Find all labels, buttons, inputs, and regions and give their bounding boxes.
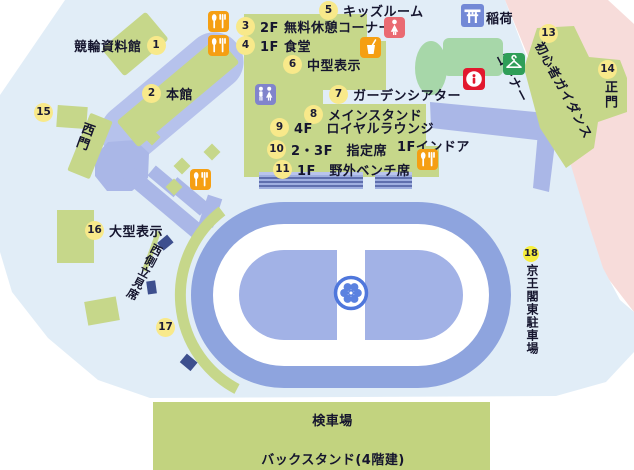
marker-9-label: 4F ロイヤルラウンジ (294, 118, 434, 137)
marker-15[interactable]: 15 (34, 103, 53, 122)
marker-14[interactable]: 14 (598, 60, 617, 79)
marker-11-label: 1F 野外ベンチ席 (297, 160, 410, 179)
marker-17[interactable]: 17 (156, 318, 175, 337)
marker-2-label: 本館 (166, 84, 193, 103)
marker-10-label: 2・3F 指定席 (291, 140, 387, 159)
drink-icon (360, 37, 381, 58)
marker-1-label: 競輪資料館 (74, 36, 142, 55)
marker-11[interactable]: 11 (273, 160, 292, 179)
restaurant-icon (208, 35, 229, 56)
female-icon (384, 17, 405, 38)
marker-9[interactable]: 9 (270, 118, 289, 137)
inspection-area-label: 検車場 (285, 410, 380, 429)
restaurant-icon (208, 11, 229, 32)
marker-5[interactable]: 5 (319, 1, 338, 20)
hanger-icon (503, 53, 525, 75)
marker-1[interactable]: 1 (147, 36, 166, 55)
marker-4[interactable]: 4 (236, 36, 255, 55)
center-emblem-icon (336, 278, 367, 309)
restaurant-icon (417, 149, 438, 170)
torii-icon (461, 4, 484, 27)
marker-18[interactable]: 18 (523, 246, 539, 262)
backstand-label: バックスタンド(4階建) (238, 449, 428, 468)
marker-6[interactable]: 6 (283, 55, 302, 74)
marker-4-label: 1F 食堂 (260, 36, 311, 55)
velodrome-map: 競輪資料館 1 2 本館 3 2F 無料休憩コーナー 4 1F 食堂 5 キッズ… (0, 0, 634, 470)
marker-2[interactable]: 2 (142, 84, 161, 103)
inari-label: 稲荷 (486, 8, 513, 27)
restroom-icon (255, 84, 276, 105)
marker-16[interactable]: 16 (85, 221, 104, 240)
marker-6-label: 中型表示 (307, 55, 361, 74)
marker-7-label: ガーデンシアター (353, 85, 461, 104)
marker-18-label: 京王閣東駐車場 (524, 264, 541, 355)
marker-14-label: 正門 (600, 80, 619, 110)
marker-3[interactable]: 3 (236, 17, 255, 36)
marker-16-label: 大型表示 (109, 221, 163, 240)
marker-7[interactable]: 7 (329, 85, 348, 104)
marker-10[interactable]: 10 (267, 140, 286, 159)
info-icon (463, 68, 485, 90)
restaurant-icon (190, 169, 211, 190)
